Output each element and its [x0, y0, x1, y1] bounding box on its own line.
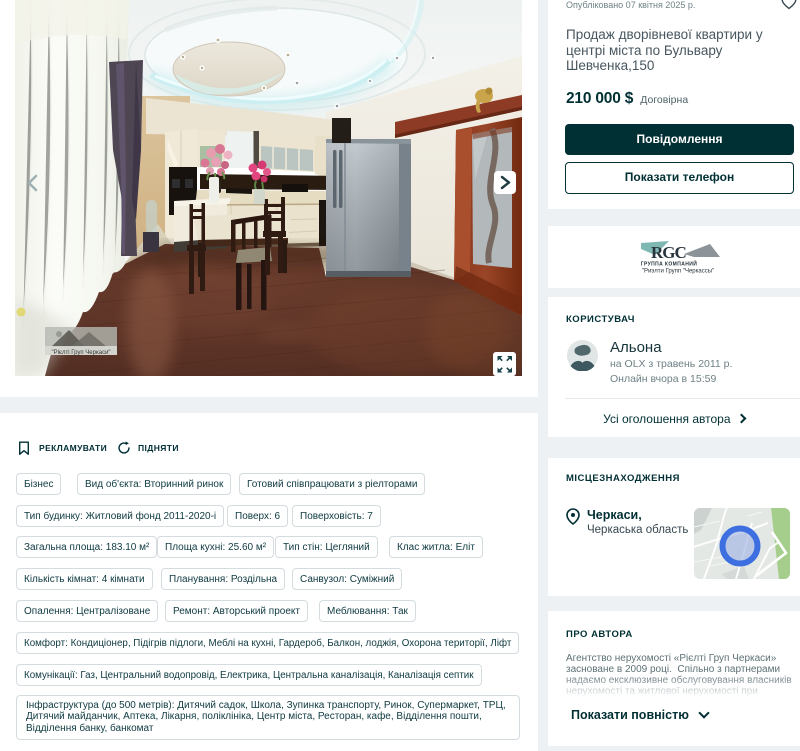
svg-text:ГРУППА КОМПАНИЙ: ГРУППА КОМПАНИЙ [641, 260, 698, 268]
svg-text:"Риэлти Групп "Черкассы": "Риэлти Групп "Черкассы" [642, 269, 714, 275]
svg-text:"Рієлті Груп Черкаси": "Рієлті Груп Черкаси" [51, 350, 110, 356]
svg-text:RGC: RGC [651, 243, 686, 262]
